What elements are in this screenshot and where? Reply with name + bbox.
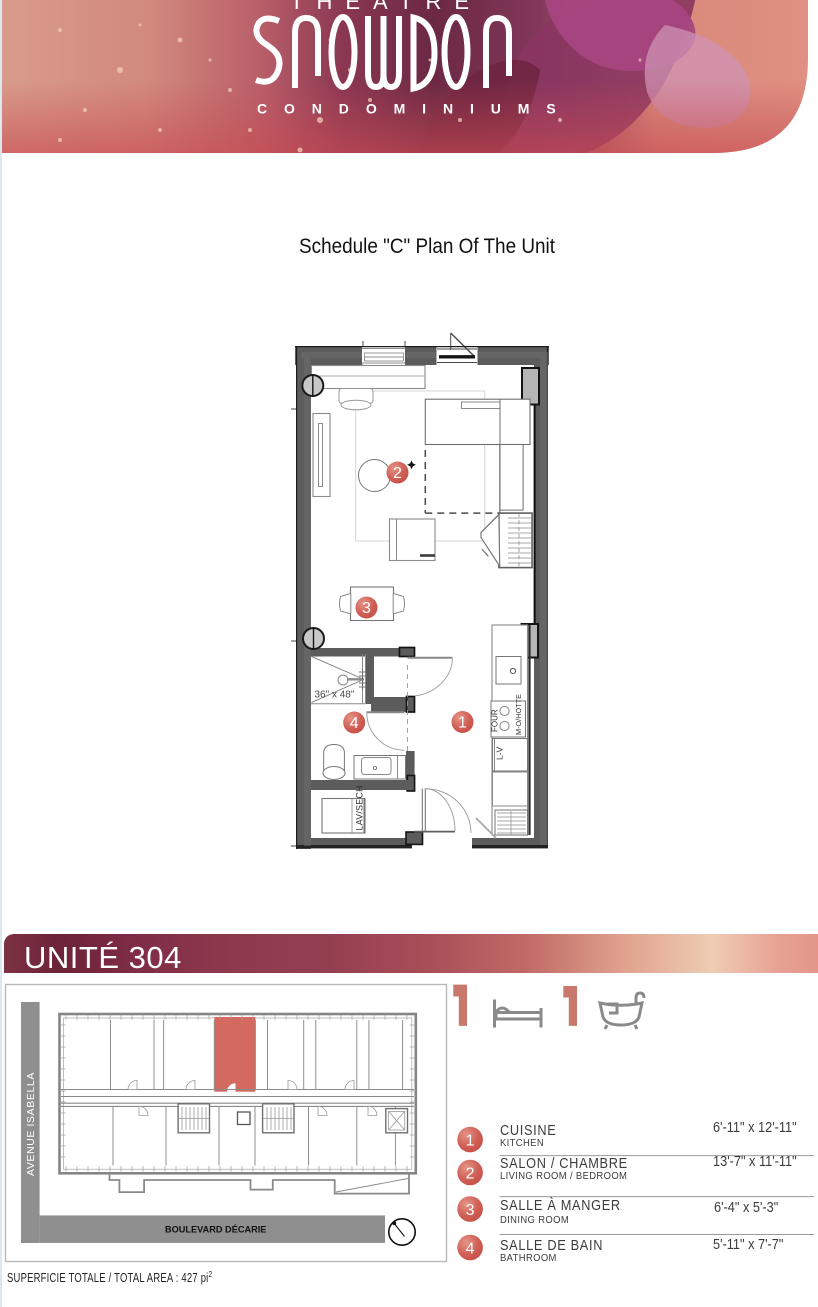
svg-text:3: 3 — [362, 600, 371, 617]
svg-text:1: 1 — [458, 715, 467, 732]
svg-text:4: 4 — [350, 715, 359, 732]
svg-text:AVENUE ISABELLA: AVENUE ISABELLA — [25, 1072, 37, 1176]
svg-text:LAV/SECH: LAV/SECH — [355, 785, 365, 830]
svg-text:BOULEVARD DÉCARIE: BOULEVARD DÉCARIE — [165, 1224, 266, 1235]
svg-text:4: 4 — [466, 1241, 475, 1258]
svg-text:1: 1 — [466, 1133, 475, 1150]
svg-text:2: 2 — [393, 465, 402, 482]
svg-text:FOUR: FOUR — [491, 709, 500, 732]
svg-text:L-V: L-V — [495, 746, 505, 760]
svg-text:2: 2 — [466, 1166, 475, 1183]
svg-text:3: 3 — [466, 1202, 475, 1219]
svg-text:M-O/HOTTE: M-O/HOTTE — [514, 694, 523, 735]
svg-text:36" x 48": 36" x 48" — [315, 690, 355, 701]
